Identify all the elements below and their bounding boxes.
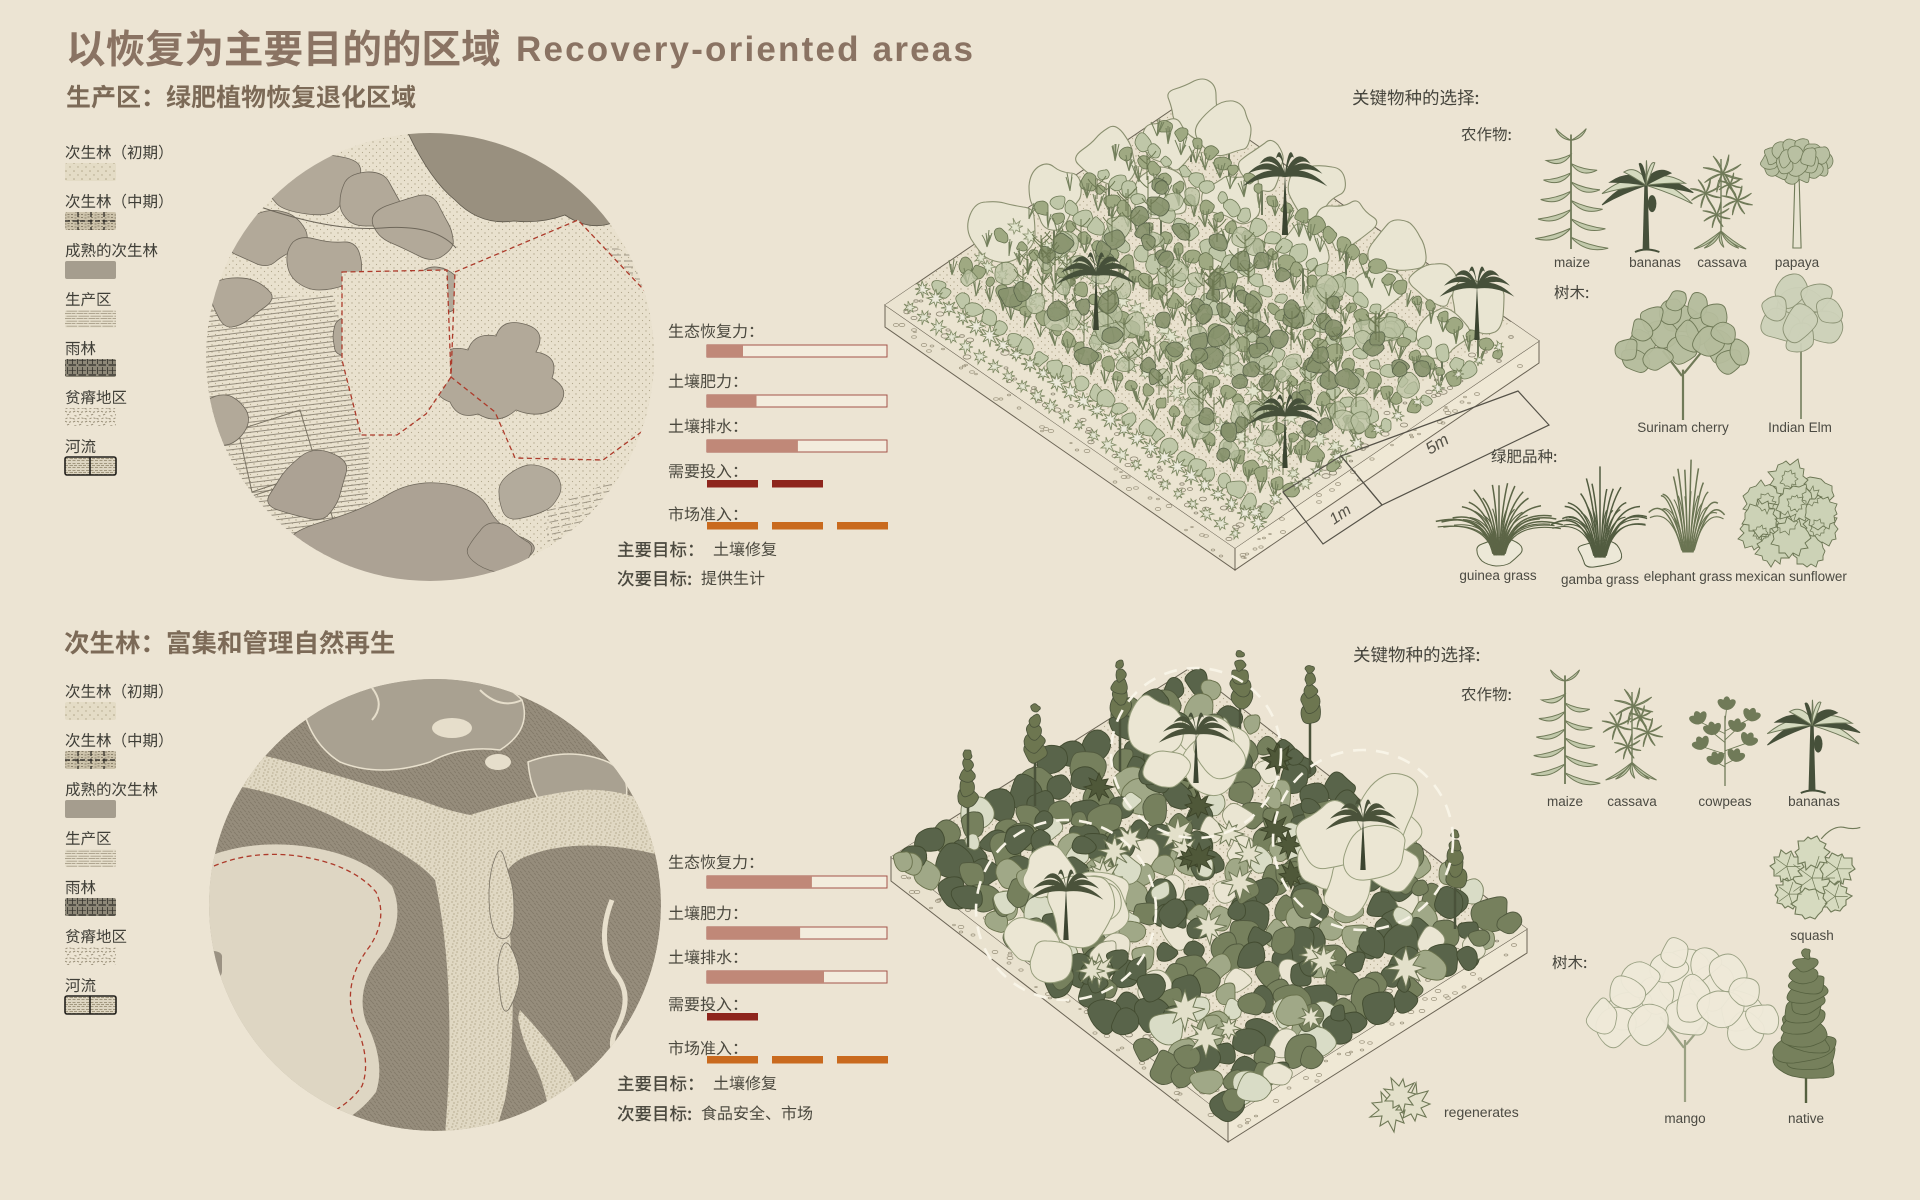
svg-text:papaya: papaya — [1775, 255, 1820, 270]
svg-text:cowpeas: cowpeas — [1698, 794, 1752, 809]
svg-text:Recovery-oriented areas: Recovery-oriented areas — [516, 30, 975, 69]
svg-text:bananas: bananas — [1788, 794, 1840, 809]
svg-text:maize: maize — [1554, 255, 1590, 270]
svg-text:mango: mango — [1664, 1111, 1705, 1126]
svg-text:mexican sunflower: mexican sunflower — [1735, 569, 1847, 584]
svg-text:cassava: cassava — [1697, 255, 1747, 270]
svg-text:regenerates: regenerates — [1444, 1104, 1519, 1120]
svg-text:Indian Elm: Indian Elm — [1768, 420, 1832, 435]
svg-text:squash: squash — [1790, 928, 1834, 943]
svg-text:gamba grass: gamba grass — [1561, 572, 1639, 587]
svg-text:Surinam cherry: Surinam cherry — [1637, 420, 1729, 435]
svg-text:guinea grass: guinea grass — [1459, 568, 1537, 583]
svg-text:maize: maize — [1547, 794, 1583, 809]
svg-text:native: native — [1788, 1111, 1824, 1126]
svg-text:elephant grass: elephant grass — [1644, 569, 1733, 584]
svg-text:cassava: cassava — [1607, 794, 1657, 809]
svg-text:bananas: bananas — [1629, 255, 1681, 270]
